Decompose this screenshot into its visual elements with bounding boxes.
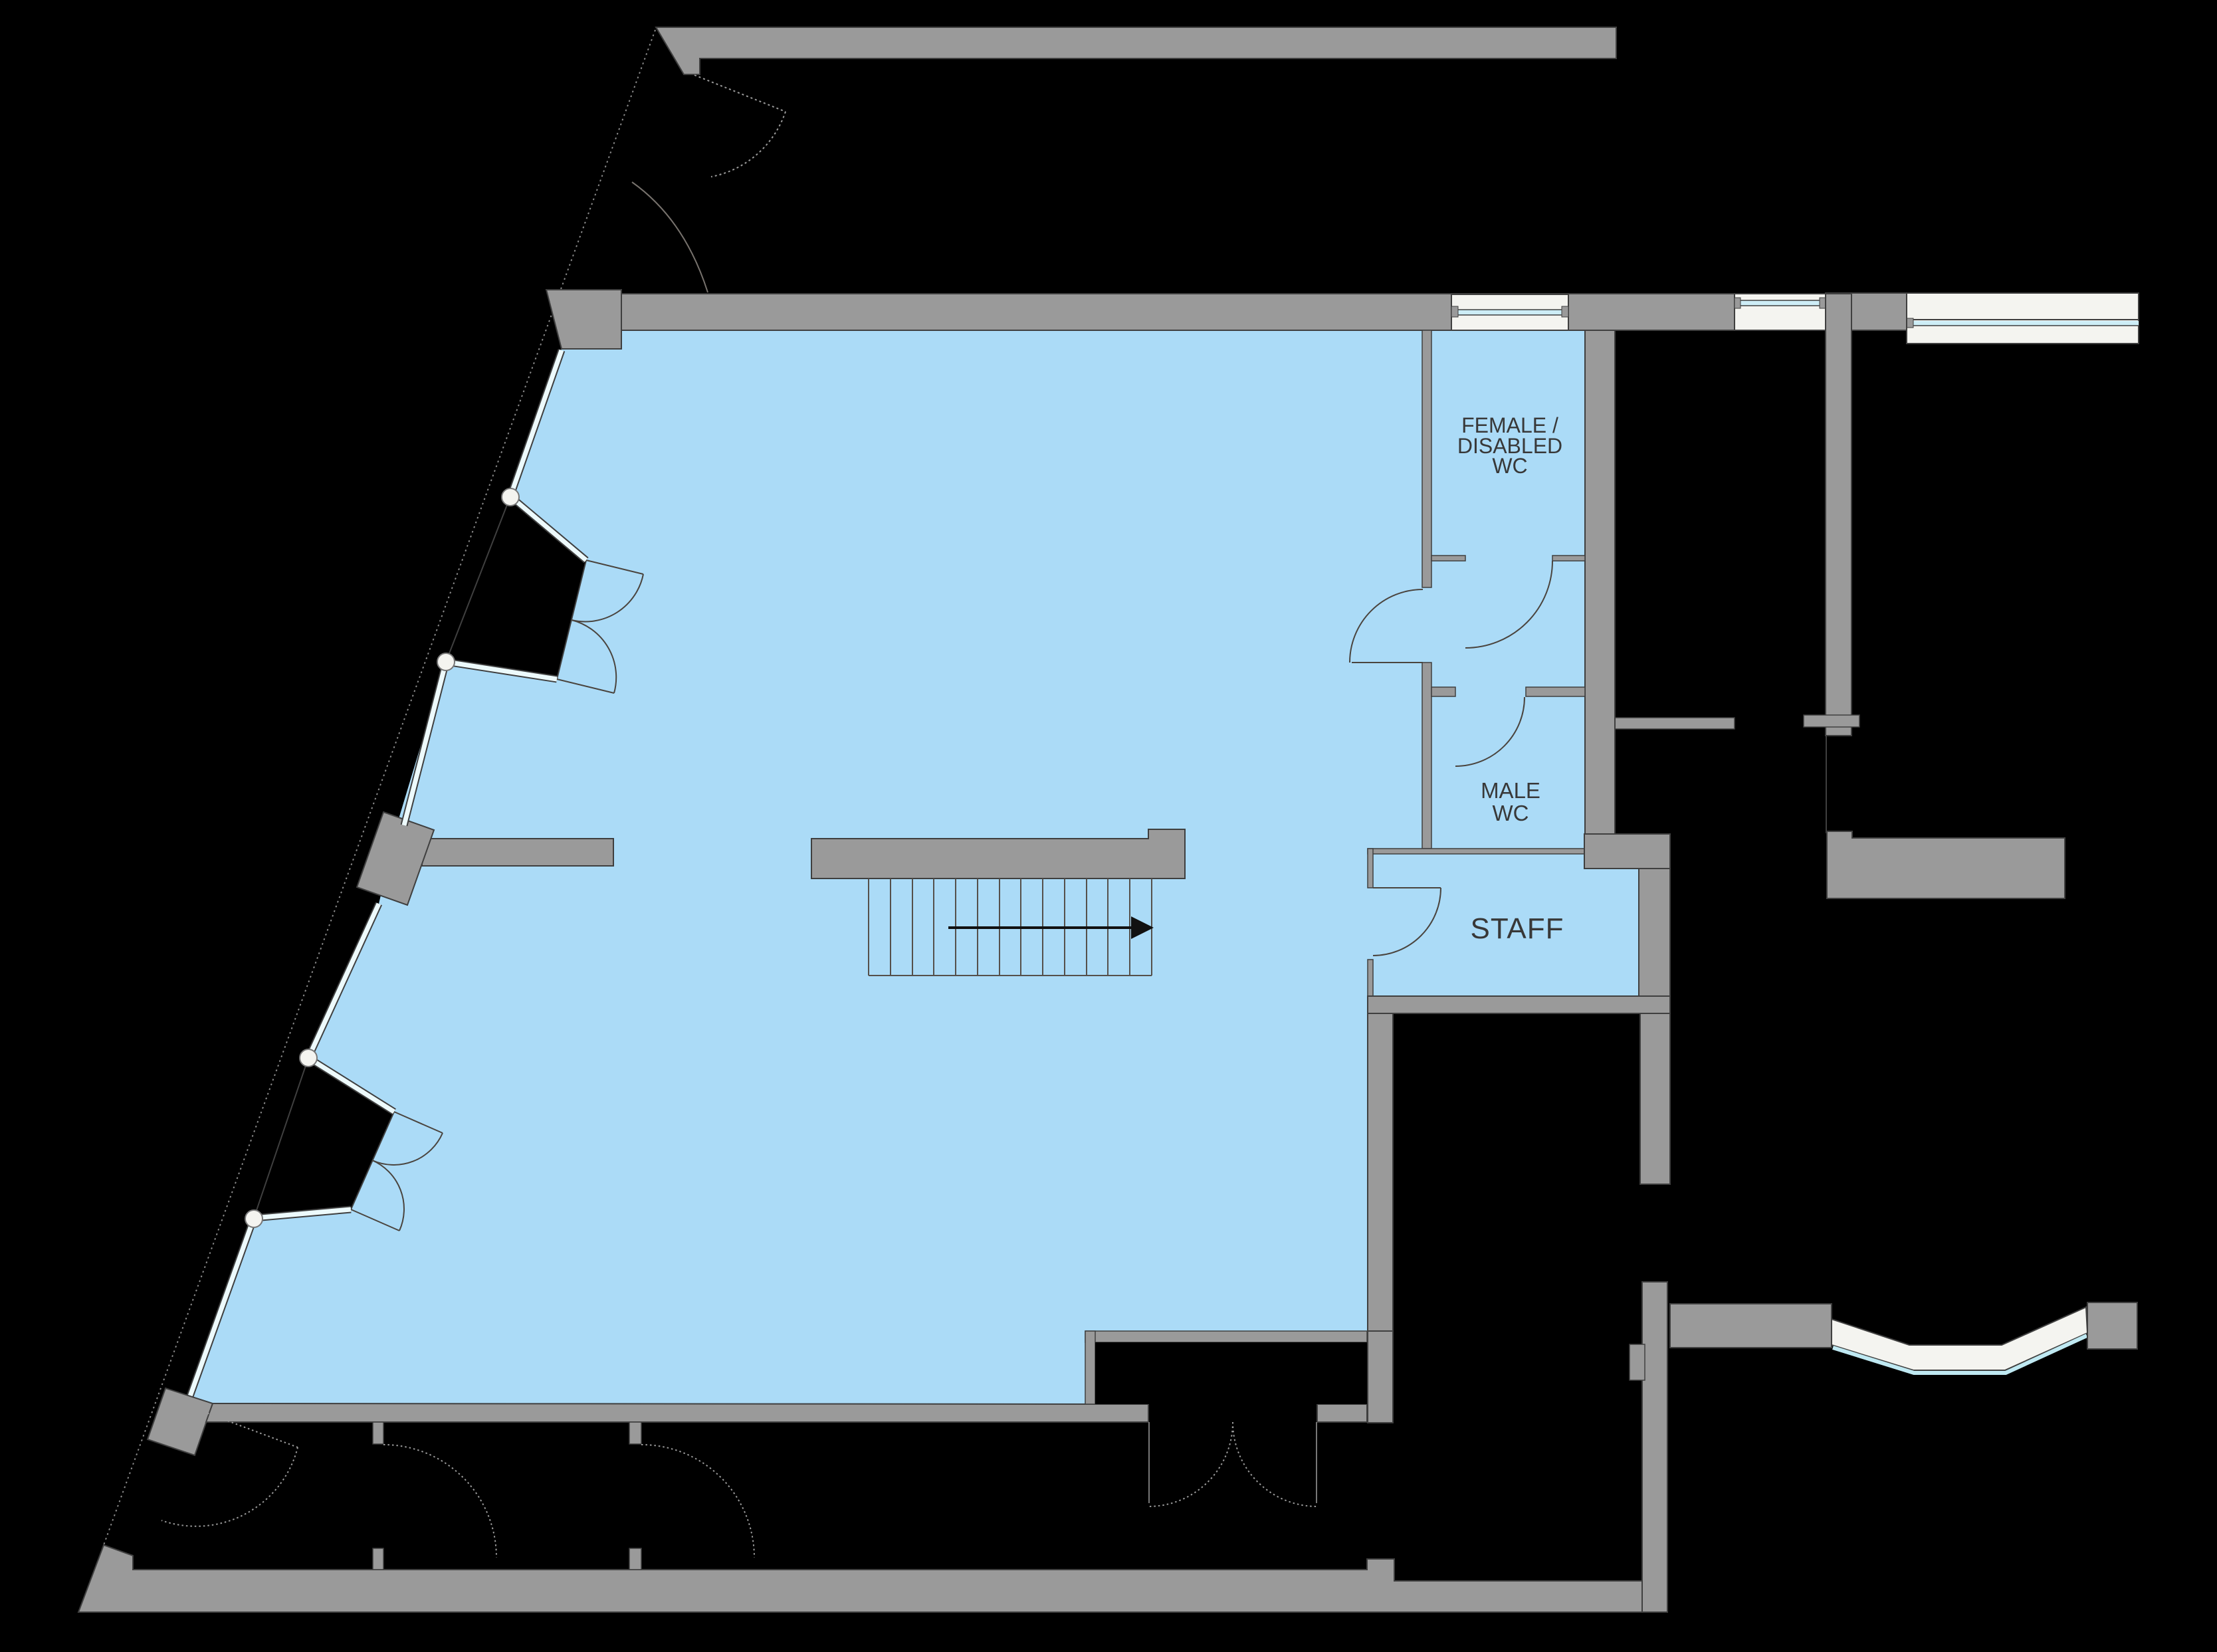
svg-text:WC: WC xyxy=(1492,454,1527,478)
svg-text:STAFF: STAFF xyxy=(1470,912,1564,945)
svg-text:MALE: MALE xyxy=(1481,778,1540,803)
svg-text:WC: WC xyxy=(1493,801,1529,825)
